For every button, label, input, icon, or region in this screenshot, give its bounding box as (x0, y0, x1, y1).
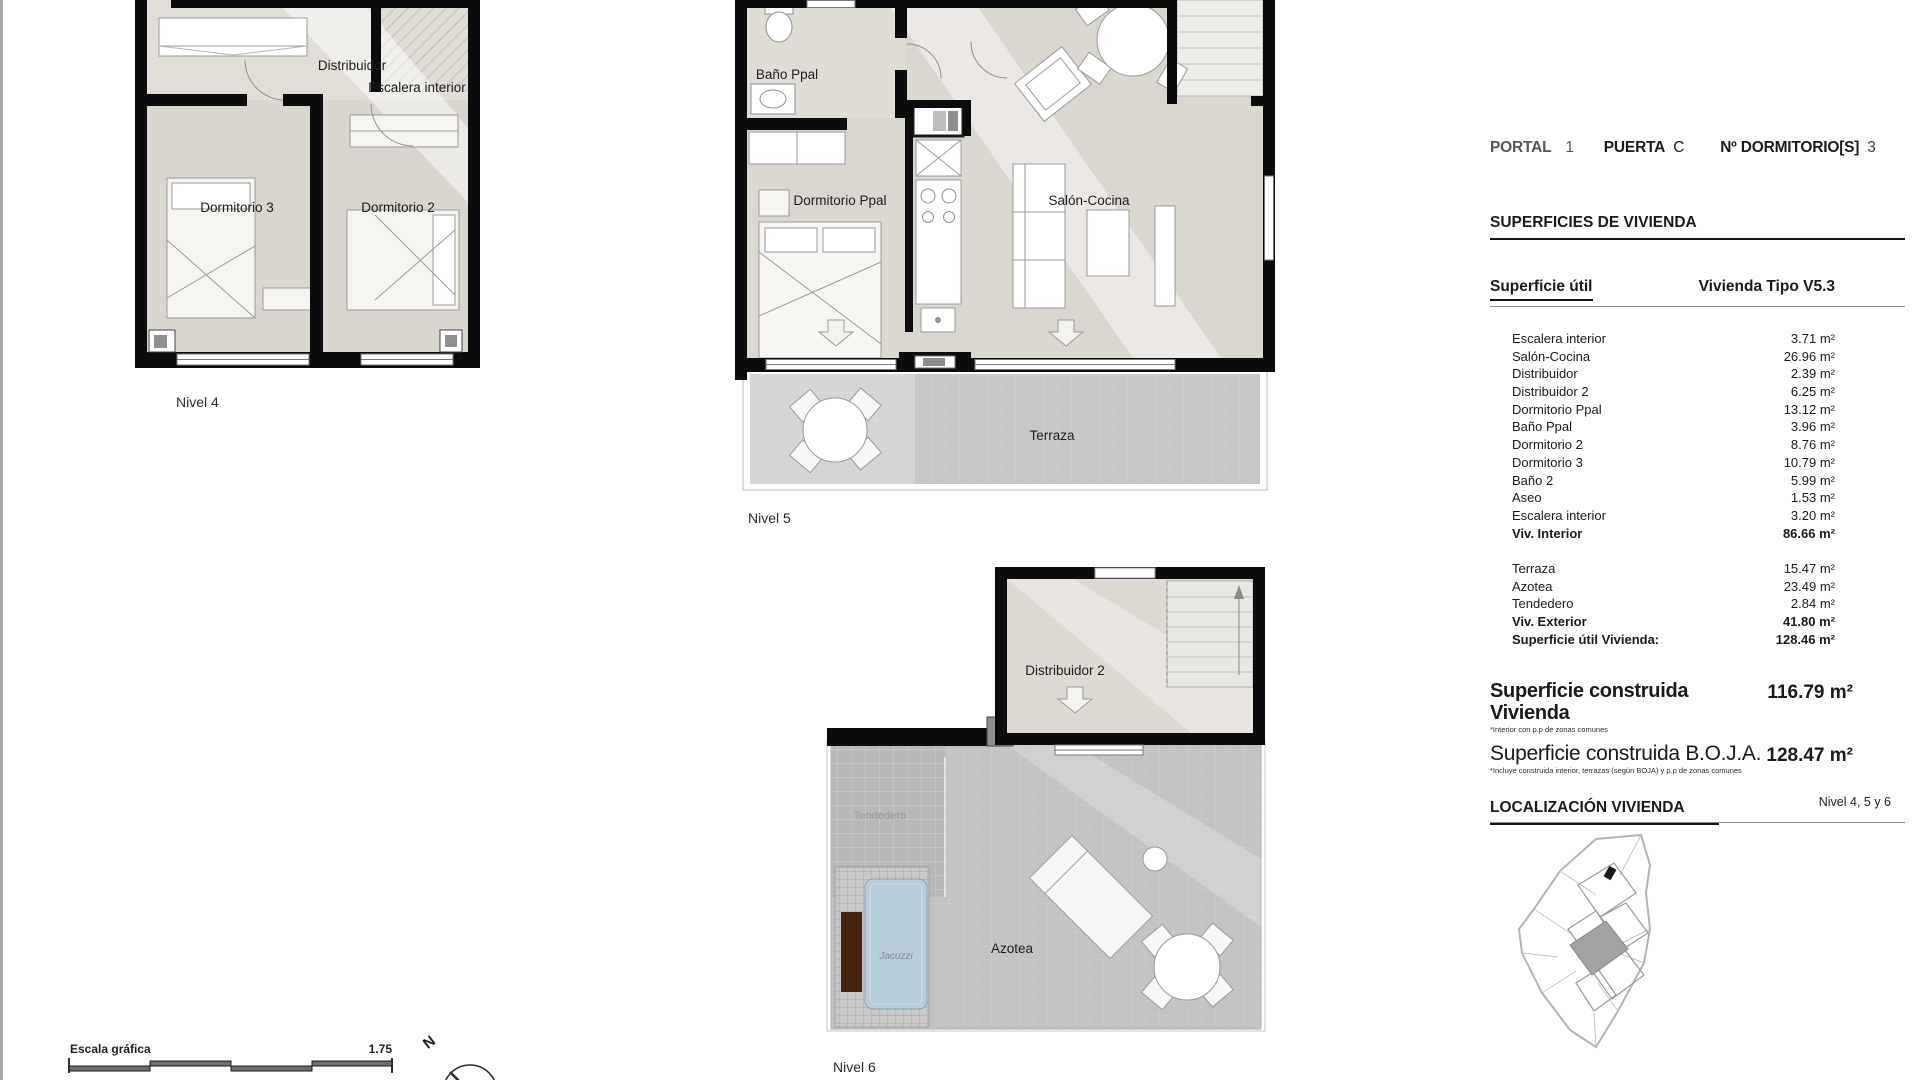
jacuzzi-tub (865, 879, 927, 1009)
room-label-terraza: Terraza (1029, 428, 1074, 443)
vivienda-tipo-label: Vivienda Tipo V5.3 (1699, 278, 1835, 301)
puerta-label: PUERTA (1604, 139, 1665, 157)
nivel5-stair (1177, 0, 1263, 96)
room-label-dormitorio-ppal: Dormitorio Ppal (793, 193, 886, 208)
room-label-azotea: Azotea (991, 941, 1033, 956)
interior-area-row: Aseo1.53 m² (1512, 489, 1835, 507)
room-label-dormitorio2: Dormitorio 2 (361, 200, 435, 215)
area-label: Tendedero (1512, 595, 1791, 613)
interior-area-row: Baño Ppal3.96 m² (1512, 418, 1835, 436)
area-label: Dormitorio 3 (1512, 454, 1784, 472)
interior-area-row: Escalera interior3.71 m² (1512, 330, 1835, 348)
area-value: 23.49 m² (1784, 578, 1835, 596)
portal-label: PORTAL (1490, 139, 1551, 157)
roof-table (1142, 923, 1234, 1010)
area-value: 2.39 m² (1791, 365, 1835, 383)
interior-area-row: Dormitorio 28.76 m² (1512, 436, 1835, 454)
construida-label: Superficie construida Vivienda (1490, 680, 1767, 724)
room-label-jacuzzi: Jacuzzi (879, 951, 912, 962)
room-label-distribuidor-n4: Distribuidor (318, 58, 386, 73)
exterior-area-row: Viv. Exterior41.80 m² (1512, 613, 1835, 631)
construida-label: Superficie construida B.O.J.A. (1490, 743, 1761, 765)
puerta-value: C (1673, 139, 1684, 157)
interior-area-row: Salón-Cocina26.96 m² (1512, 348, 1835, 366)
area-label: Superficie útil Vivienda: (1512, 631, 1776, 649)
interior-area-row: Distribuidor2.39 m² (1512, 365, 1835, 383)
area-value: 2.84 m² (1791, 595, 1835, 613)
room-label-dormitorio3: Dormitorio 3 (200, 200, 274, 215)
terraza-area (743, 368, 1267, 490)
room-label-escalera-n4: Escalera interior (368, 80, 466, 95)
exterior-area-row: Azotea23.49 m² (1512, 578, 1835, 596)
exterior-area-row: Terraza15.47 m² (1512, 560, 1835, 578)
nivel6-stair (1167, 581, 1253, 687)
area-label: Salón-Cocina (1512, 348, 1784, 366)
portal-value: 1 (1565, 139, 1573, 157)
area-label: Escalera interior (1512, 330, 1791, 348)
area-label: Dormitorio Ppal (1512, 401, 1784, 419)
nivel6-caption: Nivel 6 (833, 1059, 876, 1075)
superficie-util-label: Superficie útil (1490, 278, 1593, 301)
construida-section: Superficie construida Vivienda*Interior … (1490, 680, 1905, 784)
exterior-area-row: Tendedero2.84 m² (1512, 595, 1835, 613)
localizacion-divider (1490, 822, 1905, 823)
area-value: 15.47 m² (1784, 560, 1835, 578)
dormitorios-label: Nº DORMITORIO[S] (1720, 139, 1859, 157)
area-value: 3.20 m² (1791, 507, 1835, 525)
interior-area-row: Viv. Interior86.66 m² (1512, 525, 1835, 543)
room-label-tendedero: Tendedero (854, 810, 906, 822)
construida-value: 128.47 m² (1766, 743, 1853, 775)
exterior-areas-table: Terraza15.47 m²Azotea23.49 m²Tendedero2.… (1490, 560, 1905, 648)
graphic-scale-bar (68, 1058, 394, 1076)
area-label: Terraza (1512, 560, 1784, 578)
area-value: 3.71 m² (1791, 330, 1835, 348)
north-arrow-icon (430, 1044, 504, 1080)
superficies-section-title: SUPERFICIES DE VIVIENDA (1490, 214, 1905, 240)
interior-area-row: Baño 25.99 m² (1512, 472, 1835, 490)
scale-label: Escala gráfica (70, 1042, 151, 1056)
interior-area-row: Dormitorio 310.79 m² (1512, 454, 1835, 472)
distribuidor2-room (995, 567, 1265, 755)
bench (841, 912, 862, 992)
area-value: 86.66 m² (1783, 525, 1835, 543)
area-label: Dormitorio 2 (1512, 436, 1791, 454)
util-divider (1490, 306, 1905, 307)
area-label: Baño Ppal (1512, 418, 1791, 436)
interior-area-row: Escalera interior3.20 m² (1512, 507, 1835, 525)
construida-row: Superficie construida Vivienda*Interior … (1490, 680, 1853, 734)
area-label: Distribuidor 2 (1512, 383, 1791, 401)
unit-header: PORTAL 1 PUERTA C Nº DORMITORIO[S] 3 (1490, 139, 1876, 157)
area-value: 6.25 m² (1791, 383, 1835, 401)
area-value: 1.53 m² (1791, 489, 1835, 507)
construida-footnote: *Interior con p.p de zonas comunes (1490, 725, 1767, 734)
area-label: Baño 2 (1512, 472, 1791, 490)
nivel6-floorplan (823, 567, 1268, 1035)
interior-areas-table: Escalera interior3.71 m²Salón-Cocina26.9… (1490, 330, 1905, 542)
room-label-bano-ppal: Baño Ppal (756, 67, 818, 82)
room-label-salon-cocina: Salón-Cocina (1048, 193, 1129, 208)
construida-value: 116.79 m² (1767, 680, 1853, 734)
info-panel: PORTAL 1 PUERTA C Nº DORMITORIO[S] 3 SUP… (1490, 130, 1905, 850)
plan-sheet-page: Distribuidor Escalera interior Dormitori… (0, 0, 1920, 1080)
construida-row: Superficie construida B.O.J.A.*Incluye c… (1490, 743, 1853, 775)
util-header-row: Superficie útil Vivienda Tipo V5.3 (1490, 278, 1905, 301)
localizacion-nivel-label: Nivel 4, 5 y 6 (1819, 795, 1891, 809)
area-label: Escalera interior (1512, 507, 1791, 525)
area-value: 5.99 m² (1791, 472, 1835, 490)
nivel4-caption: Nivel 4 (176, 394, 219, 410)
area-label: Distribuidor (1512, 365, 1791, 383)
area-label: Viv. Interior (1512, 525, 1783, 543)
area-value: 8.76 m² (1791, 436, 1835, 454)
page-edge-line (0, 0, 3, 1080)
area-value: 13.12 m² (1784, 401, 1835, 419)
construida-footnote: *Incluye construida interior, terrazas (… (1490, 766, 1761, 775)
nivel5-kitchen (913, 106, 963, 332)
interior-area-row: Distribuidor 26.25 m² (1512, 383, 1835, 401)
area-label: Viv. Exterior (1512, 613, 1783, 631)
interior-area-row: Dormitorio Ppal13.12 m² (1512, 401, 1835, 419)
area-label: Aseo (1512, 489, 1791, 507)
nivel5-caption: Nivel 5 (748, 510, 791, 526)
area-value: 10.79 m² (1784, 454, 1835, 472)
dormitorios-value: 3 (1867, 139, 1875, 157)
nivel4-floorplan (135, 0, 480, 368)
area-value: 41.80 m² (1783, 613, 1835, 631)
highlighted-unit (1570, 921, 1628, 975)
area-value: 128.46 m² (1776, 631, 1835, 649)
exterior-area-row: Superficie útil Vivienda:128.46 m² (1512, 631, 1835, 649)
area-label: Azotea (1512, 578, 1784, 596)
area-value: 3.96 m² (1791, 418, 1835, 436)
room-label-distribuidor2: Distribuidor 2 (1025, 663, 1105, 678)
scale-ratio: 1.75 (352, 1042, 392, 1056)
site-location-map (1498, 833, 1748, 1080)
azotea-area (827, 717, 1265, 1031)
area-value: 26.96 m² (1784, 348, 1835, 366)
